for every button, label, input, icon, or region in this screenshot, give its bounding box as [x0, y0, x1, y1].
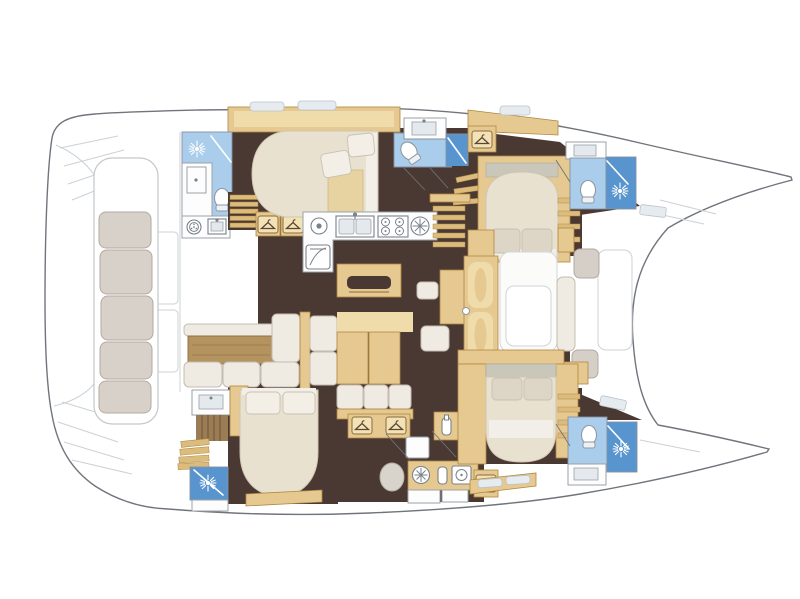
- pillow: [492, 378, 522, 400]
- lounge-pad: [557, 277, 575, 351]
- nav-seat: [421, 326, 449, 351]
- deck-hatch: [478, 478, 502, 488]
- shower-sun-icon: [200, 475, 216, 491]
- pillow: [522, 229, 552, 253]
- wardrobe-hanger-icon: [258, 216, 278, 233]
- pillow: [524, 378, 552, 400]
- washing-machine-icon: [187, 220, 201, 234]
- wardrobe-hanger-icon: [352, 417, 372, 434]
- stove-icon: [378, 216, 408, 237]
- toilet-icon: [581, 181, 596, 204]
- bench-cushion: [99, 212, 151, 248]
- fridge-icon: [306, 245, 330, 269]
- bottle-icon: [442, 415, 451, 435]
- deck-hatch: [298, 101, 336, 110]
- forward-cockpit-table: [506, 286, 551, 346]
- bench-cushion: [100, 342, 152, 379]
- shower-sun-icon: [189, 141, 205, 157]
- starboard-aft-berth: [240, 388, 318, 496]
- cockpit-dining: [184, 314, 300, 387]
- pillow: [283, 392, 315, 414]
- deck-hatch: [250, 102, 284, 111]
- bottle-icon: [438, 467, 447, 484]
- port-companionway-stairs: [228, 192, 260, 230]
- nav-desk: [440, 270, 467, 324]
- oven-icon: [452, 466, 471, 484]
- pillow: [347, 133, 375, 158]
- seat-cushion: [184, 362, 222, 387]
- seat-cushion: [261, 362, 299, 387]
- port-utility-counter: [182, 216, 230, 238]
- port-aft-berth: [252, 131, 378, 217]
- door-knob: [463, 308, 470, 315]
- pillow: [492, 229, 520, 253]
- double-sink-icon: [336, 213, 374, 238]
- toilet-icon: [582, 426, 597, 449]
- cockpit-table: [188, 336, 274, 364]
- wardrobe-hanger-icon: [386, 417, 406, 434]
- aft-cockpit-bench: [94, 158, 158, 424]
- seat-cushion: [272, 314, 300, 362]
- wardrobe-hanger-icon: [283, 216, 303, 233]
- pillow: [246, 392, 280, 414]
- shower-sun-icon: [613, 441, 629, 457]
- seat-cushion: [337, 385, 363, 409]
- galley-island: [337, 264, 401, 297]
- laundry-basket: [380, 463, 404, 491]
- forward-cockpit-door: [463, 256, 499, 364]
- starboard-forward-cabin: [458, 350, 580, 464]
- porthole-icon: [411, 217, 429, 235]
- nav-seat: [417, 282, 438, 299]
- bench-cushion: [100, 250, 152, 294]
- floor-plan-figure: [0, 0, 800, 599]
- seat-cushion: [364, 385, 388, 409]
- cabin-sole: [196, 415, 228, 441]
- sofa-base: [337, 332, 368, 384]
- catamaran-floor-plan: [0, 0, 800, 599]
- shower-sun-icon: [612, 183, 628, 199]
- wardrobe-hanger-icon: [472, 131, 492, 148]
- seat-cushion: [310, 316, 337, 351]
- toilet-icon: [215, 189, 230, 212]
- bench-cushion: [99, 381, 151, 413]
- deck-hatch: [506, 475, 530, 485]
- seat-cushion: [310, 352, 337, 385]
- washing-machine-icon: [413, 467, 430, 484]
- deck-hatch: [500, 106, 530, 115]
- bench-cushion: [101, 296, 153, 340]
- pillow: [320, 150, 352, 178]
- seat-cushion: [389, 385, 411, 409]
- sofa-base: [369, 332, 400, 384]
- port-aft-bathroom: [182, 132, 232, 216]
- starboard-aft-shower: [190, 467, 228, 500]
- lounge-pad: [574, 249, 599, 278]
- seat-cushion: [223, 362, 260, 387]
